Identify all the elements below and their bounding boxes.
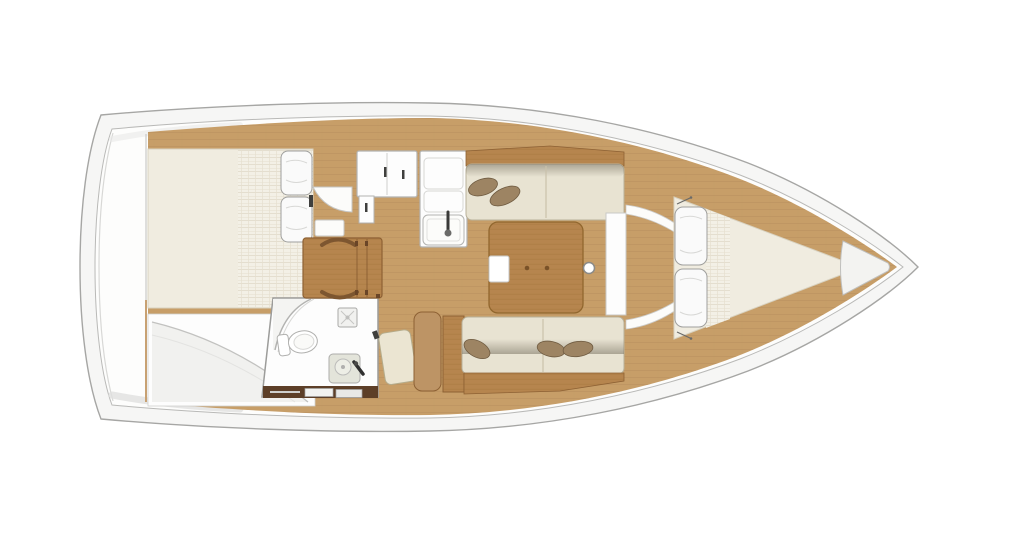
nav-station — [303, 238, 382, 298]
galley-counter-lockers — [357, 151, 417, 197]
settee-top — [466, 164, 624, 220]
head-compartment — [262, 298, 464, 398]
table-fitting — [545, 266, 550, 271]
aft-berth-pillow — [281, 151, 312, 195]
washbasin — [329, 354, 363, 383]
vberth-pillow — [675, 269, 707, 327]
aft-cabin-step — [315, 220, 344, 236]
salon-cabinet — [414, 312, 464, 392]
settee-bottom — [461, 317, 624, 374]
bulkhead-passage — [606, 213, 626, 315]
locker-handle — [402, 170, 405, 179]
floor-plan-canvas — [0, 0, 1024, 546]
mast-post — [584, 263, 595, 274]
shower-fixture — [338, 308, 357, 327]
table-leaf — [489, 256, 509, 282]
table-fitting — [525, 266, 530, 271]
galley-counter-main — [420, 151, 467, 247]
galley-appliance — [359, 196, 374, 223]
galley-sink — [423, 212, 464, 245]
vberth-pillow — [675, 207, 707, 265]
head-joinery-band — [263, 386, 378, 398]
vberth-quilt — [706, 209, 730, 328]
aft-berth-pillow — [281, 197, 312, 242]
aft-cabin-door-hinge — [309, 195, 313, 207]
salon-table — [489, 222, 583, 313]
locker-handle — [384, 167, 387, 177]
yacht-floor-plan — [0, 0, 1024, 546]
